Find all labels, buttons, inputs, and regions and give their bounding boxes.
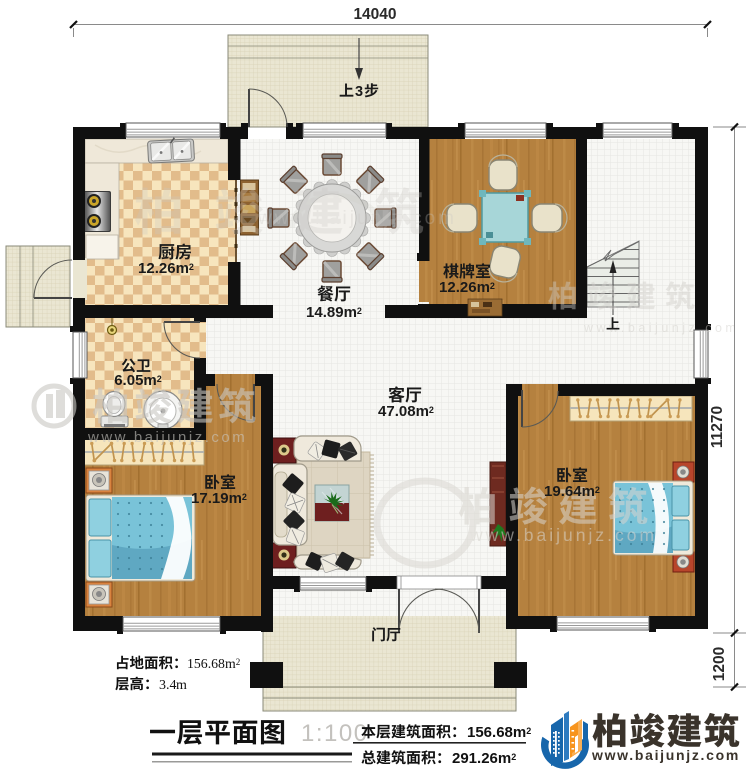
- svg-text:www.baijunjz.com: www.baijunjz.com: [591, 747, 740, 763]
- svg-text:1200: 1200: [711, 647, 728, 681]
- svg-text:3.4: 3.4: [159, 678, 177, 693]
- svg-text:12.26m2: 12.26m2: [138, 260, 194, 277]
- svg-text:www.baijunjz.com: www.baijunjz.com: [469, 525, 657, 545]
- svg-text:14040: 14040: [353, 6, 396, 23]
- svg-text:3: 3: [355, 84, 363, 100]
- svg-text:www.baijunjz.com: www.baijunjz.com: [87, 429, 247, 446]
- svg-text:m: m: [176, 678, 187, 693]
- svg-text:291.26m2: 291.26m2: [452, 750, 516, 767]
- svg-text:6.05m2: 6.05m2: [114, 372, 162, 389]
- svg-text:47.08m2: 47.08m2: [378, 403, 434, 420]
- svg-text:156.68m2: 156.68m2: [467, 724, 531, 741]
- svg-text:12.26m2: 12.26m2: [439, 279, 495, 296]
- svg-text:14.89m2: 14.89m2: [306, 304, 362, 321]
- svg-text:17.19m2: 17.19m2: [191, 490, 247, 507]
- svg-text:11270: 11270: [709, 406, 726, 448]
- svg-text:156.68: 156.68: [187, 656, 225, 671]
- svg-text:www.baijunjz.com: www.baijunjz.com: [257, 208, 457, 229]
- svg-text:www.baijunjz.com: www.baijunjz.com: [583, 321, 739, 335]
- svg-text:19.64m2: 19.64m2: [544, 483, 600, 500]
